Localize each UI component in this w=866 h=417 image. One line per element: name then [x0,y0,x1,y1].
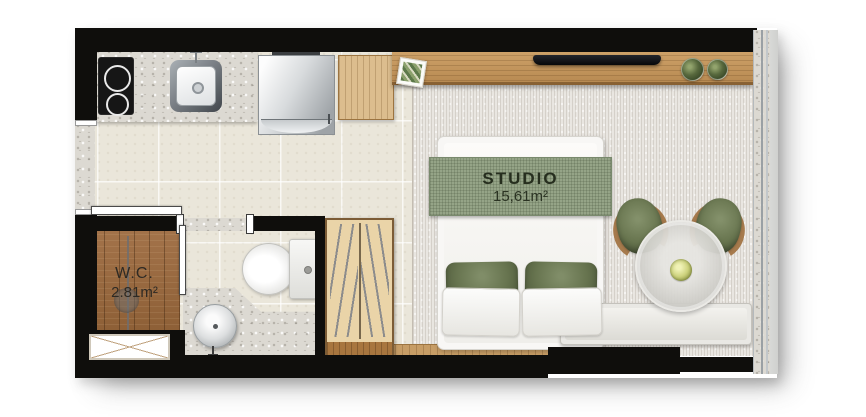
pillow-icon [442,287,521,336]
wood-cabinet [338,55,394,120]
burner-icon [106,93,129,116]
room-label-wc-block: W.C. 2.81m² [89,264,180,302]
apartment-floorplan: STUDIO 15,61m² W.C. 2.81m² [75,28,777,378]
room-label-studio: STUDIO [482,169,558,188]
wall-left-structural [75,124,95,213]
wardrobe-rail [359,223,361,339]
hangers-left [330,224,358,337]
washbasin-icon [193,304,237,348]
wardrobe-base [327,342,392,355]
tv-icon [533,55,661,65]
door-jamb [246,214,254,234]
sliding-door-leaf [91,206,182,215]
plant-icon [681,58,704,81]
flower-centerpiece-icon [670,259,692,281]
shower-glass-partition [179,225,186,295]
cooktop-icon [98,57,134,115]
shower-wood-floor: W.C. 2.81m² [89,228,180,333]
wall-bottom-main [185,355,548,378]
window-glass-line [761,30,763,374]
basin-drain [213,324,218,329]
wc-wall-right [315,216,325,356]
wall-cap [75,120,97,126]
picture-art [401,62,423,84]
hangers-right [361,224,389,337]
kitchen-countertop [95,50,257,122]
refrigerator-icon [258,55,335,135]
pillow-icon [522,287,603,336]
wall-bottom-step [548,347,680,374]
picture-frame-icon [396,57,427,88]
wall-bottom-thin [680,357,757,372]
wall-left-upper [75,28,97,124]
wc-window-icon [89,334,170,360]
kitchen-sink-icon [170,60,222,112]
dining-table-icon [635,220,727,312]
window-glass-line [766,30,768,374]
burner-icon [104,65,131,92]
plant-icon [707,59,728,80]
room-area-wc: 2.81m² [89,284,180,302]
wardrobe-icon [325,218,394,357]
wall-top [75,28,757,52]
floorplan-canvas: STUDIO 15,61m² W.C. 2.81m² [0,0,866,417]
flush-button [304,266,312,274]
room-area-studio: 15,61m² [493,188,548,205]
toilet-tank-icon [289,239,318,299]
toilet-bowl-icon [242,243,295,295]
refrigerator-handle [328,114,330,124]
balcony-window-strip [753,30,778,374]
room-label-wc: W.C. [89,264,180,284]
refrigerator-door [261,119,332,133]
door-threshold [183,218,247,231]
tv-console-shelf [392,50,753,85]
wc-wall-top-left [81,216,178,231]
bed-throw-label: STUDIO 15,61m² [429,157,612,216]
sink-drain [192,82,204,94]
window-outer-rail [770,30,778,374]
shelf-edge [392,82,753,85]
